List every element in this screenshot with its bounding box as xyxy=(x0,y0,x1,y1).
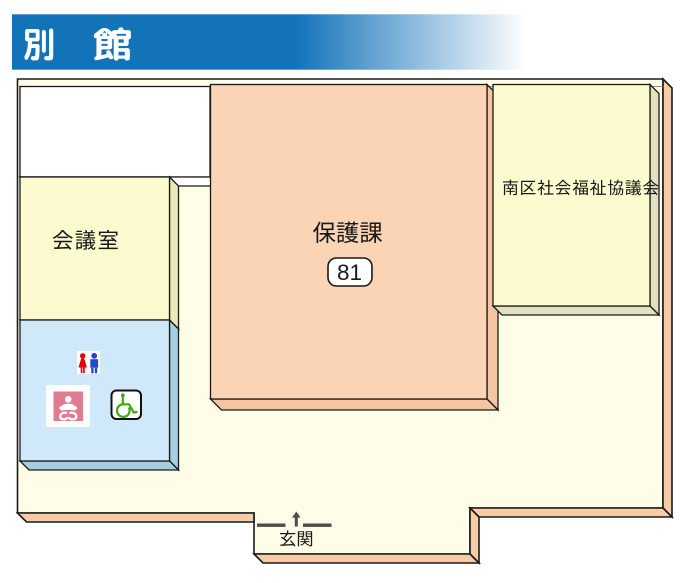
svg-text:81: 81 xyxy=(337,260,362,285)
